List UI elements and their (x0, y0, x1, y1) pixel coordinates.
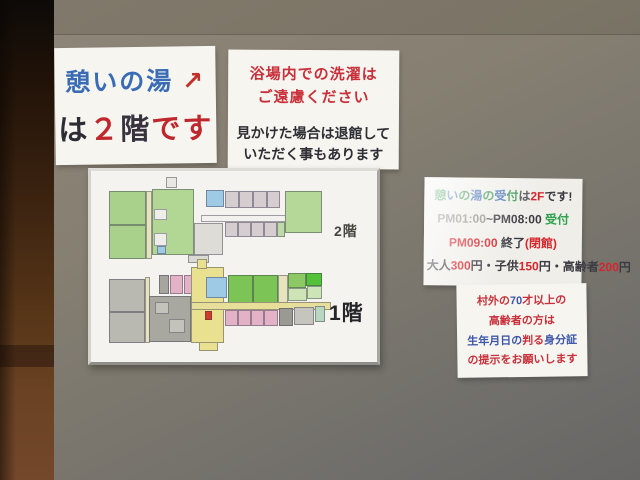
text-part: です (151, 113, 213, 146)
floorplan-room (307, 286, 322, 299)
floorplan-room (238, 222, 251, 237)
floorplan-room (154, 209, 167, 220)
sign-id-required: 村外の70才以上の 高齢者の方は 生年月日の判る身分証 の提示をお願いします (456, 283, 587, 378)
pillar-dark-band (0, 345, 54, 367)
floorplan-room (199, 342, 218, 351)
text-part: ２ (89, 114, 120, 146)
text-part: 200 (599, 260, 619, 274)
text-part: (閉館) (525, 236, 557, 250)
floorplan-room (279, 308, 293, 326)
text-part: い (446, 188, 458, 202)
floorplan-room (315, 306, 325, 322)
text-part: PM01:00 (437, 212, 486, 227)
floorplan-room (288, 273, 306, 288)
text-part: 憩 (434, 188, 446, 202)
floorplan-room (225, 222, 238, 237)
laundry-line4: いただく事もあります (228, 143, 399, 165)
text-part: 身分証 (544, 334, 577, 346)
text-part: 付 (506, 189, 518, 203)
text-part: ↗ (173, 67, 205, 95)
floorplan-room (253, 191, 267, 208)
floorplan-room (109, 312, 145, 343)
id-line2: 高齢者の方は (457, 311, 587, 333)
sign-laundry-warning: 浴場内での洗濯は ご遠慮ください 見かけた場合は退館して いただく事もあります (228, 50, 400, 170)
pillar-shadow-edge (0, 0, 16, 480)
laundry-gap (228, 109, 399, 123)
floorplan-room (109, 279, 145, 312)
text-part: 才以上の (522, 294, 566, 307)
id-line1: 村外の70才以上の (456, 291, 586, 313)
text-part: の (458, 189, 470, 203)
text-part: です! (544, 189, 572, 203)
text-part: の (482, 189, 494, 203)
floorplan-room (228, 275, 253, 303)
floorplan-room (277, 222, 285, 237)
text-part: 判る (522, 334, 544, 346)
text-part: 300 (451, 259, 471, 273)
text-part: は (58, 115, 89, 147)
floorplan-room (155, 302, 169, 314)
floorplan-room (159, 275, 169, 294)
text-part: 村外の (477, 295, 510, 307)
text-part: 円 (619, 260, 631, 274)
text-part: 終了 (501, 236, 525, 250)
floorplan-room (225, 310, 238, 326)
text-part: 見かけた場合は退館して (237, 124, 391, 141)
floorplan-room (109, 191, 146, 225)
floorplan-room (251, 222, 264, 237)
text-part: PM09:00 (449, 235, 501, 250)
text-part: 70 (510, 295, 522, 307)
hours-line4: 大人300円・子供150円・高齢者200円 (427, 254, 579, 279)
floorplan-room (225, 191, 239, 208)
hours-line3: PM09:00 終了(閉館) (427, 231, 579, 256)
photo-of-wall-with-signs: 憩いの湯 ↗ は２階です 浴場内での洗濯は ご遠慮ください 見かけた場合は退館し… (0, 0, 640, 480)
id-line4: の提示をお願いします (457, 350, 587, 372)
floorplan-room (285, 191, 322, 233)
floorplan-room (264, 310, 278, 326)
text-part: 受 (494, 189, 506, 203)
floorplan-room (170, 275, 183, 294)
floorplan-room (169, 319, 185, 333)
floorplan-room (166, 177, 177, 188)
floorplan-room (239, 191, 253, 208)
hours-line1: 憩いの湯の受付は2Fです! (427, 184, 579, 209)
floorplan-room (267, 191, 280, 208)
wall-upper-band (54, 0, 640, 35)
text-part: 高齢者の方は (489, 314, 555, 327)
floorplan-room (205, 311, 212, 320)
text-part: 湯 (470, 189, 482, 203)
text-part: 浴場内での洗濯は (250, 66, 378, 84)
hours-line2: PM01:00~PM08:00 受付 (427, 208, 579, 233)
floorplan-room (264, 222, 277, 237)
text-part: 円・ (539, 260, 563, 274)
laundry-line2: ご遠慮ください (228, 86, 399, 110)
text-part: ご遠慮ください (258, 89, 370, 107)
text-part: 2F (530, 189, 544, 203)
sign-floor-line1: 憩いの湯 ↗ (54, 61, 215, 99)
floorplan-room (294, 307, 314, 325)
text-part: 150 (519, 259, 539, 273)
floorplan-room (194, 223, 223, 255)
floor-map-board: 2階 1階 (88, 168, 380, 365)
floorplan-room (251, 310, 264, 326)
laundry-line1: 浴場内での洗濯は (228, 63, 399, 87)
sign-reception-hours: 憩いの湯の受付は2Fです! PM01:00~PM08:00 受付 PM09:00… (423, 177, 582, 287)
floorplan-room (306, 273, 322, 286)
floorplan-room (197, 259, 207, 269)
text-part: 子供 (495, 259, 519, 273)
floorplan-room (109, 225, 146, 259)
text-part: 受付 (545, 213, 569, 227)
floorplan-room (238, 310, 251, 326)
floorplan-room (206, 277, 227, 298)
floor-map-label-2f: 2階 (334, 221, 358, 241)
text-part: PM08:00 (493, 212, 545, 227)
floorplan-room (278, 275, 288, 303)
floorplan-room (157, 246, 166, 254)
text-part: いただく事もあります (243, 145, 383, 162)
text-part: は (518, 189, 530, 203)
text-part: 高齢者 (563, 260, 599, 274)
sign-ikoi-no-yu-2f: 憩いの湯 ↗ は２階です (54, 46, 217, 165)
text-part: 大人 (427, 258, 451, 272)
floorplan-room (288, 288, 307, 301)
laundry-line3: 見かけた場合は退館して (228, 122, 399, 144)
text-part: 円・ (471, 259, 495, 273)
id-line3: 生年月日の判る身分証 (457, 331, 587, 353)
floor-map-label-1f: 1階 (329, 297, 364, 327)
floorplan-room (154, 233, 167, 246)
text-part: 生年月日の (467, 335, 522, 348)
text-part: 階 (120, 114, 151, 146)
text-part: 憩いの湯 (65, 67, 173, 97)
sign-floor-line2: は２階です (55, 105, 217, 149)
text-part: の提示をお願いします (467, 354, 577, 368)
floorplan-room (253, 275, 278, 303)
floorplan-room (206, 190, 224, 207)
